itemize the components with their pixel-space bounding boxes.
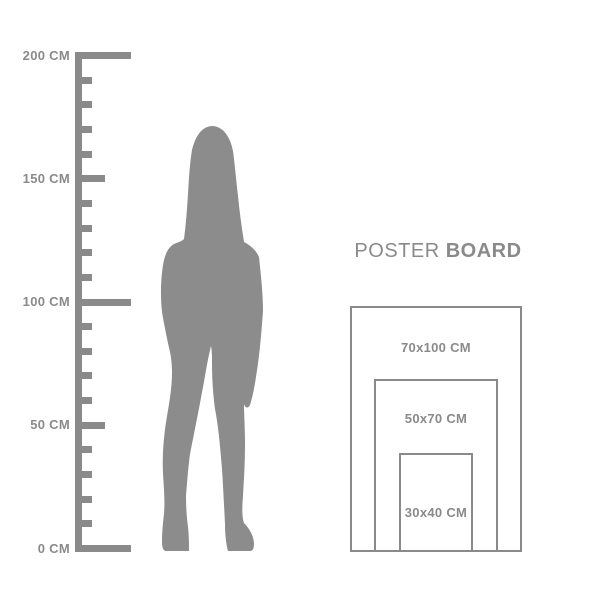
ruler-label-50cm: 50 CM [0,417,70,433]
ruler-tick-120cm [75,249,92,256]
ruler-tick-150cm [75,175,105,182]
board-size-label: 30x40 CM [401,505,471,521]
ruler-label-100cm: 100 CM [0,294,70,310]
ruler-tick-100cm [75,299,131,306]
ruler-tick-20cm [75,496,92,503]
ruler-tick-70cm [75,372,92,379]
poster-board-title-regular: POSTER [354,240,439,262]
ruler-label-150cm: 150 CM [0,171,70,187]
ruler-tick-0cm [75,545,131,552]
ruler-tick-40cm [75,446,92,453]
poster-size-comparison-chart: 200 CM150 CM100 CM50 CM0 CM POSTER BOARD… [0,0,600,600]
ruler-tick-30cm [75,471,92,478]
ruler-tick-190cm [75,77,92,84]
ruler-tick-200cm [75,52,131,59]
poster-board-title: POSTER BOARD [338,240,538,263]
ruler-tick-170cm [75,126,92,133]
board-size-label: 70x100 CM [352,340,521,356]
ruler-tick-60cm [75,397,92,404]
ruler-tick-10cm [75,520,92,527]
ruler-label-0cm: 0 CM [0,541,70,557]
ruler-tick-110cm [75,274,92,281]
ruler-tick-130cm [75,225,92,232]
ruler-tick-90cm [75,323,92,330]
ruler-tick-50cm [75,422,105,429]
ruler-tick-160cm [75,151,92,158]
woman-silhouette [150,124,265,553]
board-30x40: 30x40 CM [399,453,473,552]
board-size-label: 50x70 CM [376,411,495,427]
ruler-tick-180cm [75,101,92,108]
poster-board-title-bold: BOARD [446,240,522,262]
ruler-tick-80cm [75,348,92,355]
ruler-label-200cm: 200 CM [0,48,70,64]
ruler-tick-140cm [75,200,92,207]
